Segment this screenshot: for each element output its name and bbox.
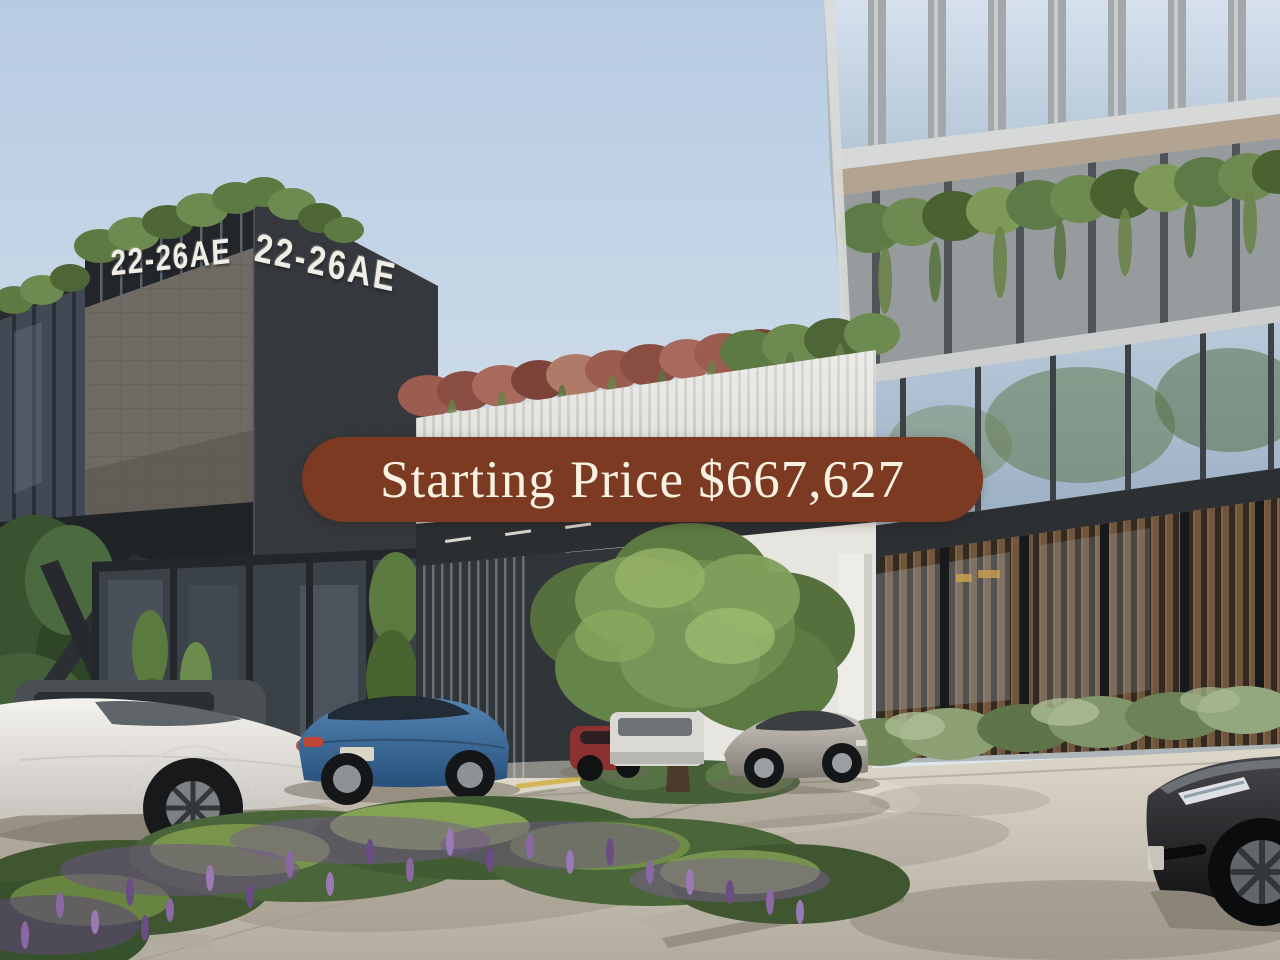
architectural-render: 22-26AE 22-26AE Starting Price $667,627 (0, 0, 1280, 960)
price-banner: Starting Price $667,627 (302, 437, 983, 522)
price-banner-label: Starting Price $667,627 (380, 450, 905, 510)
right-building (824, 0, 1280, 765)
front-plate (1148, 846, 1164, 870)
white-van (610, 712, 704, 766)
